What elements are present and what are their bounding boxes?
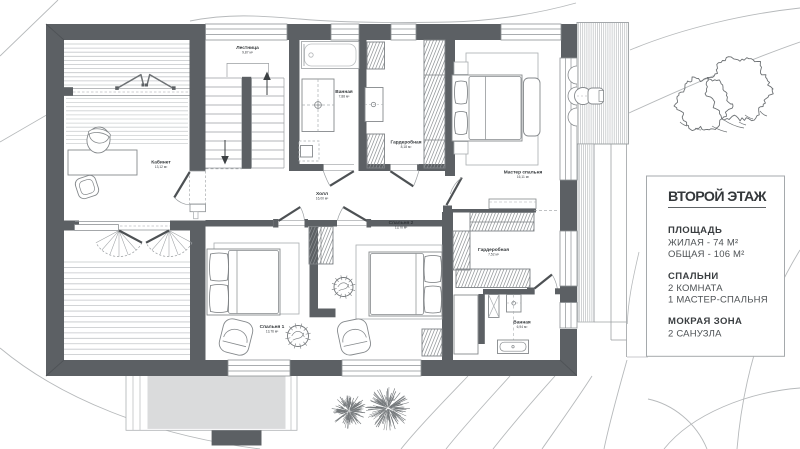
svg-text:16,00 м²: 16,00 м² <box>316 197 329 201</box>
svg-text:ПЛОЩАДЬ: ПЛОЩАДЬ <box>668 225 722 236</box>
svg-text:13,70 м²: 13,70 м² <box>395 226 408 230</box>
svg-text:2 САНУЗЛА: 2 САНУЗЛА <box>668 328 722 339</box>
svg-text:7,88 м²: 7,88 м² <box>339 95 351 99</box>
svg-text:СПАЛЬНИ: СПАЛЬНИ <box>668 271 719 282</box>
svg-text:8,18 м²: 8,18 м² <box>401 145 413 149</box>
svg-text:16,11 м²: 16,11 м² <box>517 175 530 179</box>
svg-text:13,12 м²: 13,12 м² <box>155 165 168 169</box>
svg-text:ВТОРОЙ ЭТАЖ: ВТОРОЙ ЭТАЖ <box>668 187 767 205</box>
svg-text:13,76 м²: 13,76 м² <box>266 330 279 334</box>
svg-text:9,87 м²: 9,87 м² <box>242 51 254 55</box>
svg-text:2 КОМНАТА: 2 КОМНАТА <box>668 283 723 294</box>
svg-text:ОБЩАЯ - 106 М²: ОБЩАЯ - 106 М² <box>668 249 745 260</box>
svg-text:6,94 м²: 6,94 м² <box>517 325 529 329</box>
svg-text:7,52 м²: 7,52 м² <box>488 253 500 257</box>
svg-text:МОКРАЯ ЗОНА: МОКРАЯ ЗОНА <box>668 316 742 327</box>
svg-text:ЖИЛАЯ - 74 М²: ЖИЛАЯ - 74 М² <box>668 237 738 248</box>
svg-text:1 МАСТЕР-СПАЛЬНЯ: 1 МАСТЕР-СПАЛЬНЯ <box>668 295 768 306</box>
